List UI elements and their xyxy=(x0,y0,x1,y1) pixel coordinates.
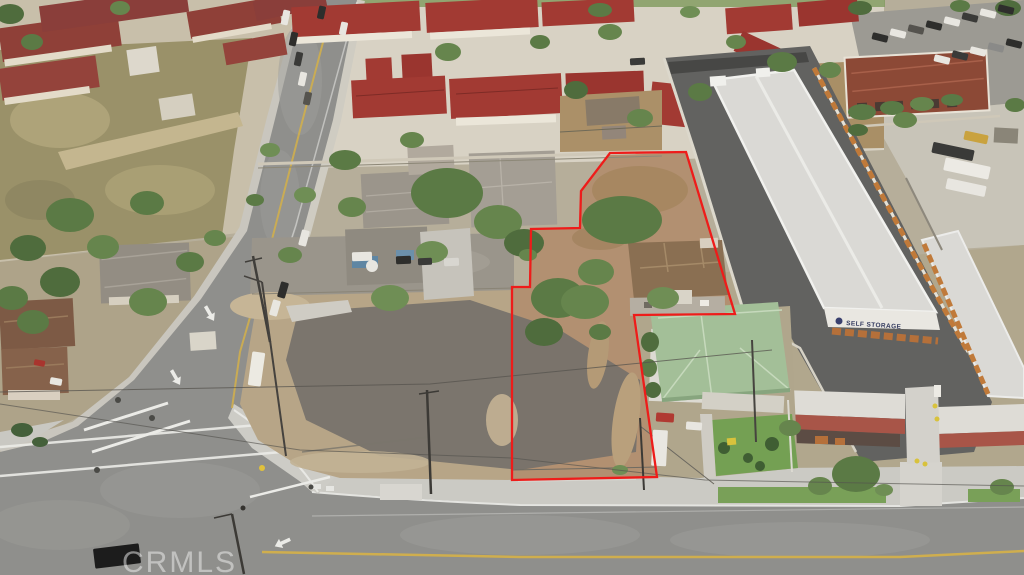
yard-sign xyxy=(727,438,737,446)
tree xyxy=(400,132,424,148)
tree xyxy=(176,252,204,272)
tree xyxy=(647,287,679,309)
tree xyxy=(204,230,226,246)
tree xyxy=(21,34,43,50)
aerial-photo: SELF STORAGE xyxy=(0,0,1024,575)
vehicle xyxy=(444,258,459,267)
tree xyxy=(519,249,537,261)
tree xyxy=(893,112,917,128)
tree xyxy=(832,456,880,492)
tree xyxy=(338,197,366,217)
tree xyxy=(848,104,876,120)
vehicle xyxy=(418,258,432,265)
tree xyxy=(598,24,622,40)
parcel-house xyxy=(628,238,728,316)
tree xyxy=(641,332,659,352)
vehicle xyxy=(656,412,675,422)
tree xyxy=(411,168,483,218)
tree xyxy=(329,150,361,170)
storage-entrance-driveway xyxy=(905,386,940,464)
tree xyxy=(767,52,797,72)
tree xyxy=(87,235,119,259)
tree xyxy=(848,124,868,136)
tree xyxy=(582,196,662,244)
storage-logo-icon xyxy=(836,318,843,325)
tree xyxy=(40,267,80,297)
tree xyxy=(848,1,872,15)
tree xyxy=(819,62,841,78)
tree xyxy=(726,35,746,49)
tree xyxy=(129,288,167,316)
curb-ramp-dot xyxy=(259,465,265,471)
tree xyxy=(564,81,588,99)
vehicle xyxy=(352,252,372,262)
tree xyxy=(779,420,801,436)
tree xyxy=(32,437,48,447)
tree xyxy=(627,109,653,127)
tree xyxy=(525,318,563,346)
tree xyxy=(578,259,614,285)
tree xyxy=(808,477,832,495)
tree xyxy=(260,143,280,157)
tree xyxy=(46,198,94,232)
tree xyxy=(680,6,700,18)
tree xyxy=(990,479,1014,495)
tree xyxy=(645,382,661,398)
tree xyxy=(688,83,712,101)
tree xyxy=(941,94,963,106)
tree xyxy=(294,187,316,203)
tree xyxy=(11,423,33,437)
tree xyxy=(588,3,612,17)
tree xyxy=(875,484,893,496)
vehicle xyxy=(396,256,411,265)
tree xyxy=(130,191,164,215)
vehicle xyxy=(630,58,645,66)
tree xyxy=(530,35,550,49)
tree xyxy=(589,324,611,340)
tree xyxy=(110,1,130,15)
tree xyxy=(950,0,970,12)
tree xyxy=(561,285,609,319)
tree xyxy=(371,285,409,311)
tree xyxy=(246,194,264,206)
vehicle xyxy=(686,421,703,430)
tree xyxy=(435,43,461,61)
aerial-photo-canvas: SELF STORAGE xyxy=(0,0,1024,575)
crmls-watermark: CRMLS xyxy=(122,546,237,575)
tree xyxy=(910,97,934,111)
tree xyxy=(10,235,46,261)
tree xyxy=(278,247,302,263)
tree xyxy=(17,310,49,334)
